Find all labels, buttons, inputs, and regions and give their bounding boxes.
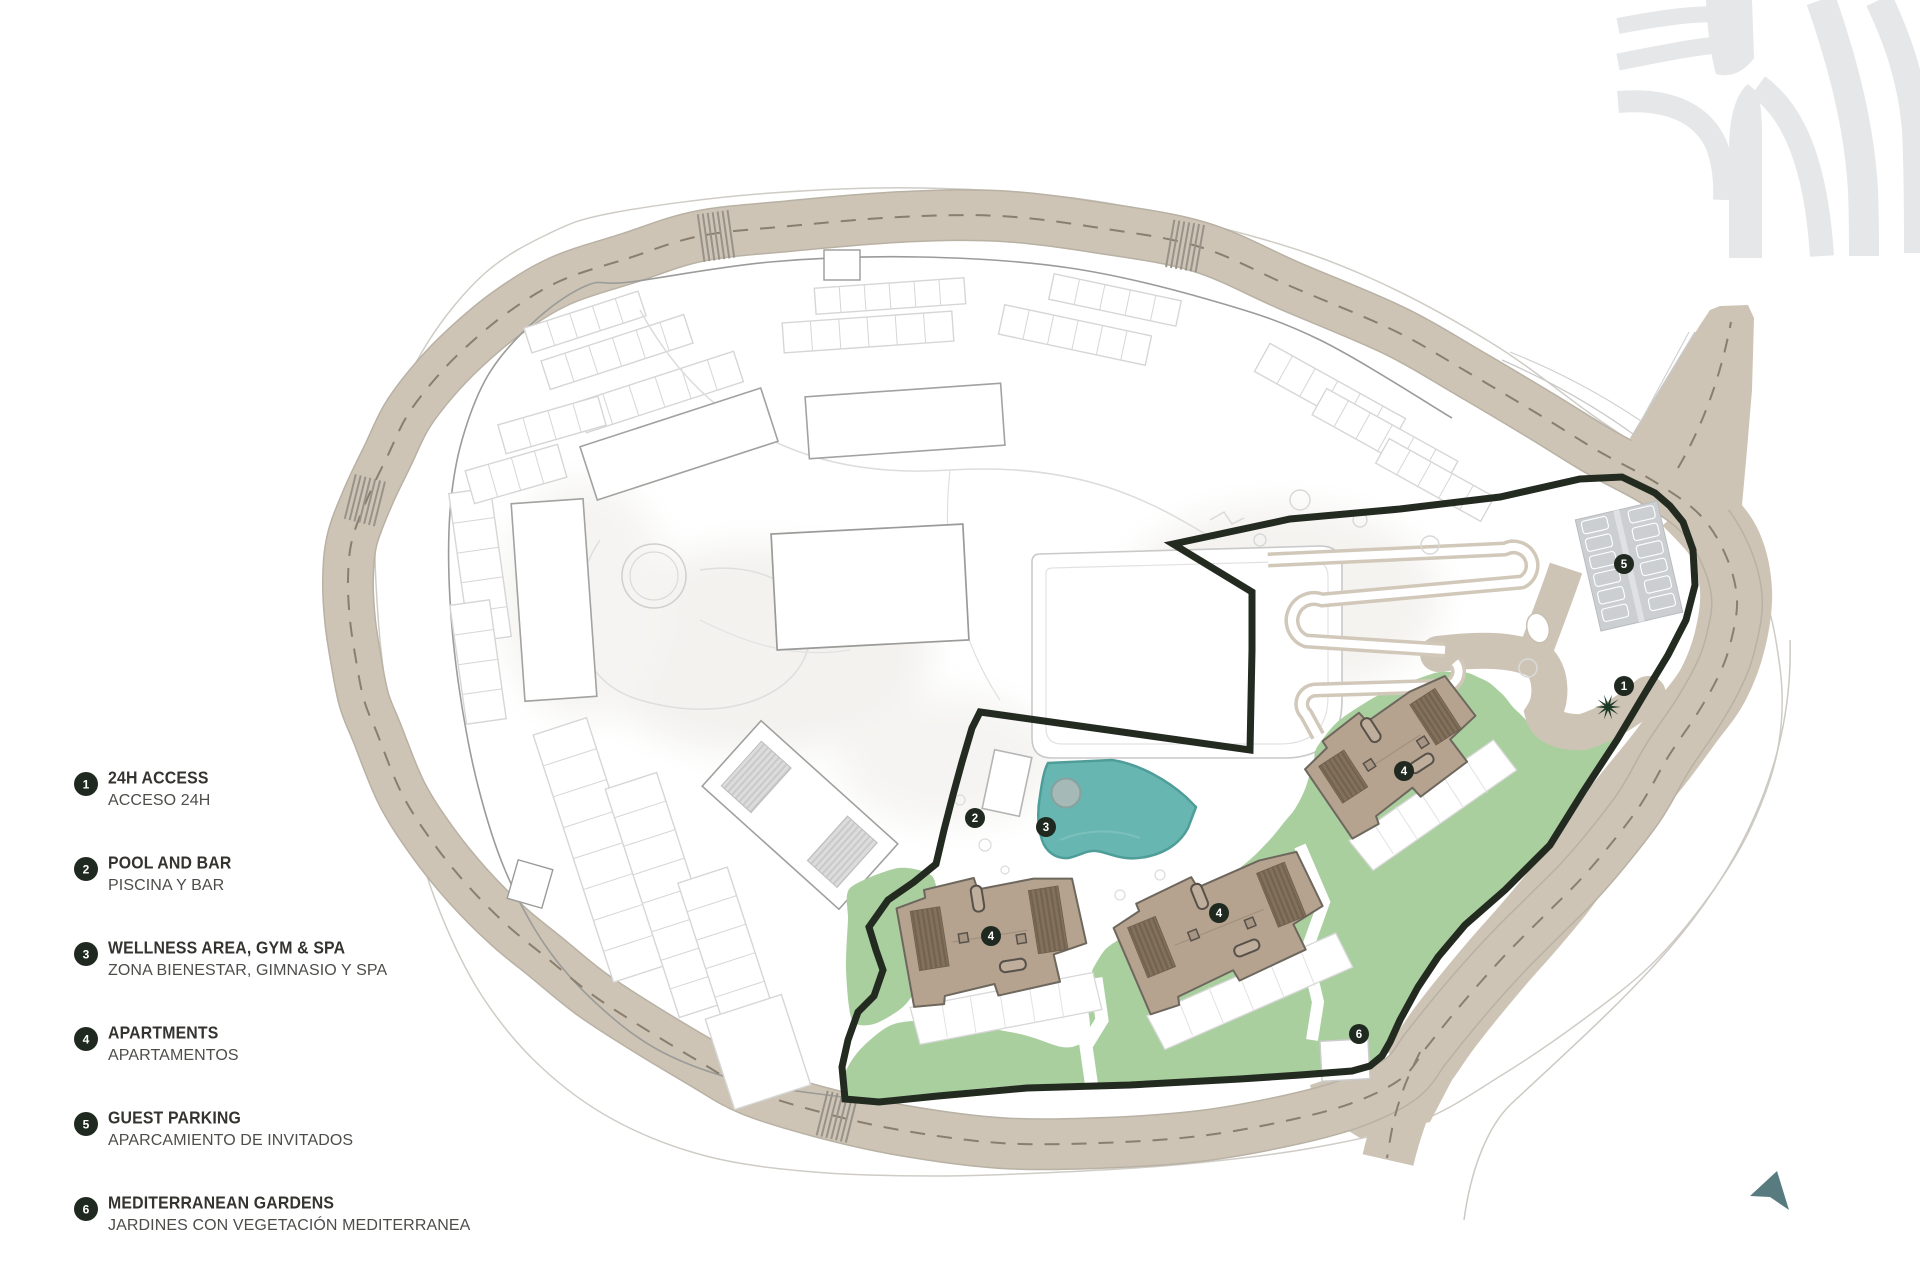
svg-text:4: 4 bbox=[1216, 908, 1223, 920]
svg-text:WELLNESS AREA, GYM & SPA: WELLNESS AREA, GYM & SPA bbox=[108, 938, 345, 958]
svg-text:GUEST PARKING: GUEST PARKING bbox=[108, 1108, 241, 1128]
svg-text:4: 4 bbox=[1401, 766, 1408, 778]
svg-text:5: 5 bbox=[83, 1118, 90, 1132]
svg-text:3: 3 bbox=[1043, 822, 1049, 834]
svg-text:2: 2 bbox=[83, 863, 90, 877]
svg-text:ZONA BIENESTAR, GIMNASIO Y SPA: ZONA BIENESTAR, GIMNASIO Y SPA bbox=[108, 962, 387, 979]
svg-text:2: 2 bbox=[972, 813, 978, 825]
svg-text:4: 4 bbox=[988, 931, 995, 943]
svg-text:4: 4 bbox=[83, 1033, 90, 1047]
svg-text:6: 6 bbox=[83, 1203, 90, 1217]
svg-text:1: 1 bbox=[83, 778, 90, 792]
svg-text:JARDINES CON VEGETACIÓN MEDITE: JARDINES CON VEGETACIÓN MEDITERRANEA bbox=[108, 1215, 471, 1234]
svg-text:6: 6 bbox=[1356, 1029, 1362, 1041]
svg-text:APARCAMIENTO DE INVITADOS: APARCAMIENTO DE INVITADOS bbox=[108, 1132, 353, 1149]
svg-text:MEDITERRANEAN GARDENS: MEDITERRANEAN GARDENS bbox=[108, 1193, 334, 1213]
svg-text:5: 5 bbox=[1621, 559, 1628, 571]
svg-text:PISCINA Y BAR: PISCINA Y BAR bbox=[108, 877, 224, 894]
svg-text:24H ACCESS: 24H ACCESS bbox=[108, 768, 209, 788]
svg-text:ACCESO 24H: ACCESO 24H bbox=[108, 792, 210, 809]
svg-text:1: 1 bbox=[1621, 681, 1628, 693]
svg-text:POOL AND BAR: POOL AND BAR bbox=[108, 853, 231, 873]
svg-text:3: 3 bbox=[83, 948, 90, 962]
svg-text:APARTMENTS: APARTMENTS bbox=[108, 1023, 218, 1043]
svg-text:APARTAMENTOS: APARTAMENTOS bbox=[108, 1047, 239, 1064]
